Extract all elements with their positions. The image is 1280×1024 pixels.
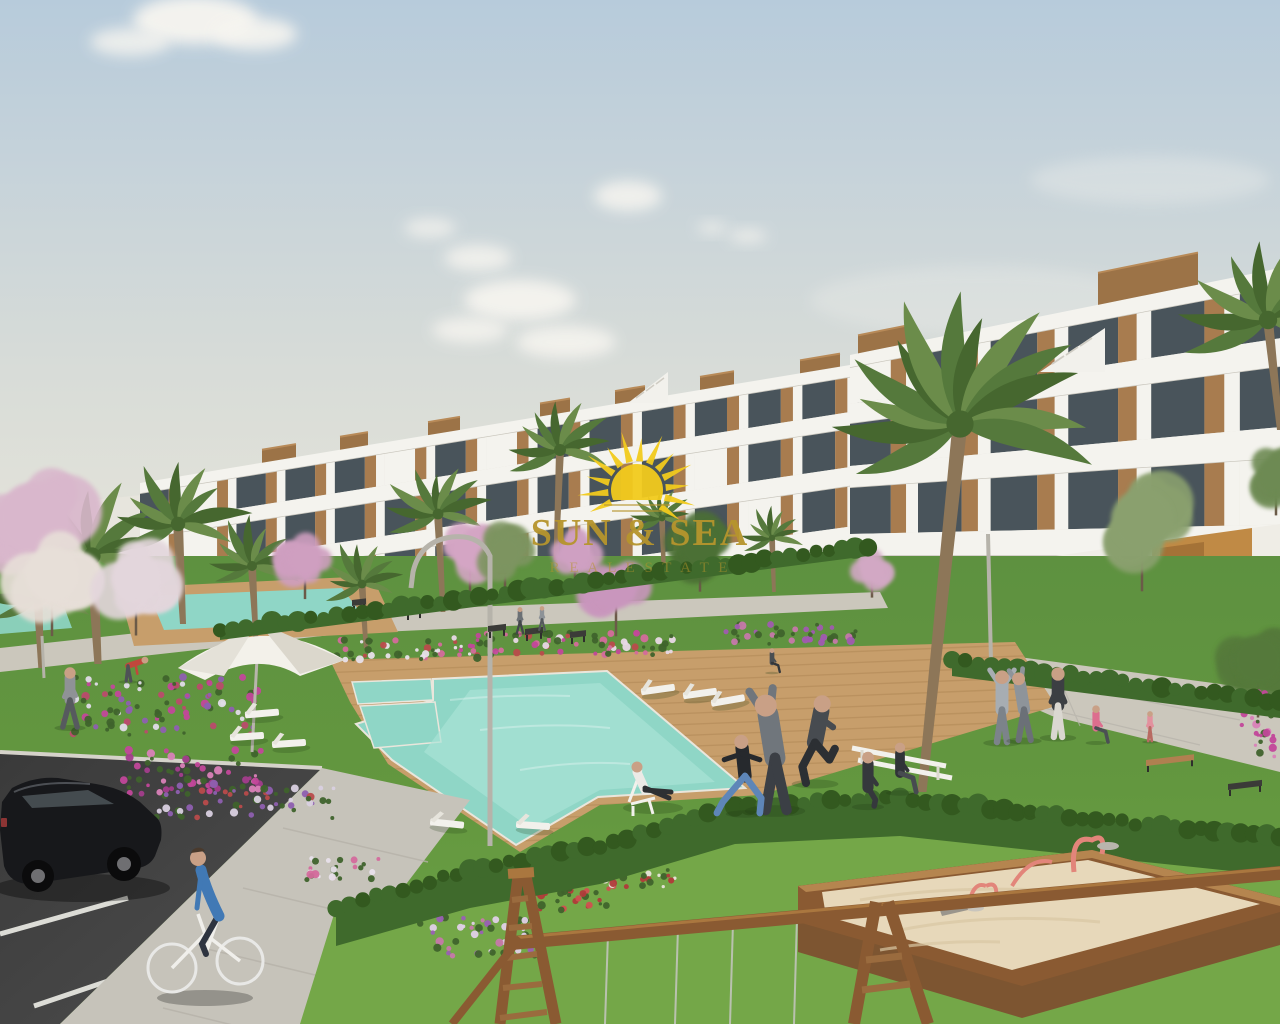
flower xyxy=(113,708,120,715)
flower xyxy=(218,799,223,804)
flower xyxy=(495,939,503,947)
flower xyxy=(774,625,779,630)
flower xyxy=(632,643,639,650)
cloud xyxy=(516,326,616,358)
wall-pier xyxy=(426,446,435,479)
flower xyxy=(492,916,499,923)
hedge-bump xyxy=(470,587,489,606)
window-glass xyxy=(802,380,835,419)
flower xyxy=(197,684,203,690)
flower xyxy=(1271,734,1275,738)
hedge-bump xyxy=(1102,813,1115,826)
flower xyxy=(242,776,249,783)
flower xyxy=(385,653,390,658)
flower xyxy=(565,634,570,639)
flower xyxy=(105,728,109,732)
limb xyxy=(1150,728,1152,742)
flower xyxy=(178,813,183,818)
flower xyxy=(157,808,162,813)
flower xyxy=(635,651,639,655)
tree-foliage xyxy=(25,547,79,601)
flower xyxy=(228,755,235,762)
flower xyxy=(468,652,471,655)
wood-panel xyxy=(835,378,847,414)
flower xyxy=(182,706,186,710)
flower xyxy=(210,723,217,730)
flower xyxy=(332,787,336,791)
flower xyxy=(558,907,565,914)
flower xyxy=(808,632,813,637)
window-glass xyxy=(1068,388,1118,446)
flower xyxy=(158,692,164,698)
flower xyxy=(521,917,528,924)
window-glass xyxy=(1068,470,1118,530)
flower xyxy=(498,648,504,654)
tree-foliage xyxy=(860,558,884,582)
flower xyxy=(288,802,295,809)
flower xyxy=(792,626,798,632)
flower xyxy=(161,778,166,783)
flower xyxy=(87,682,91,686)
person-shadow xyxy=(886,790,914,795)
flower xyxy=(657,874,660,877)
wood-panel xyxy=(835,487,847,529)
flower xyxy=(86,704,91,709)
wood-panel xyxy=(466,439,477,473)
flower xyxy=(459,645,462,648)
hedge-bump xyxy=(341,606,357,622)
flower xyxy=(164,700,169,705)
flower xyxy=(126,701,131,706)
window-glass xyxy=(802,431,835,474)
flower xyxy=(176,790,180,794)
cloud xyxy=(729,229,767,243)
flower xyxy=(93,724,98,729)
flower xyxy=(218,699,226,707)
flower xyxy=(279,803,284,808)
hedge-bump xyxy=(972,657,985,670)
flower xyxy=(603,902,610,909)
flower xyxy=(241,722,248,729)
flower xyxy=(513,638,518,643)
flower xyxy=(326,799,331,804)
flower xyxy=(436,648,440,652)
flower xyxy=(542,642,549,649)
flower xyxy=(177,783,183,789)
flower xyxy=(555,899,559,903)
wood-panel xyxy=(727,446,739,485)
person-head xyxy=(995,670,1009,684)
window-glass xyxy=(538,473,569,514)
wall-pier xyxy=(978,478,991,531)
flower xyxy=(168,706,176,714)
flower xyxy=(365,646,372,653)
flower xyxy=(142,718,148,724)
hedge-bump xyxy=(238,619,254,635)
palm-crown-center xyxy=(769,535,775,541)
cloud xyxy=(90,28,170,56)
flower xyxy=(593,652,597,656)
flower xyxy=(392,637,398,643)
flower xyxy=(356,655,364,663)
flower xyxy=(223,789,228,794)
flower xyxy=(186,804,193,811)
flower xyxy=(199,765,205,771)
flower xyxy=(267,805,273,811)
flower xyxy=(736,634,739,637)
flower xyxy=(607,630,614,637)
flower xyxy=(139,791,145,797)
hedge-bump xyxy=(1087,811,1104,828)
palm-crown-center xyxy=(433,509,444,520)
flower xyxy=(164,748,169,753)
tree-foliage xyxy=(288,543,322,577)
flower xyxy=(101,710,108,717)
flower xyxy=(666,650,670,654)
window-glass xyxy=(385,449,415,485)
person-head xyxy=(1012,672,1025,685)
wood-panel xyxy=(835,430,847,470)
flower xyxy=(115,691,122,698)
flower xyxy=(135,704,140,709)
tree-foliage xyxy=(488,535,522,569)
wood-panel xyxy=(1118,386,1137,442)
flower xyxy=(319,797,326,804)
flower xyxy=(274,792,278,796)
flower xyxy=(621,638,628,645)
flower xyxy=(723,629,728,634)
flower xyxy=(95,682,98,685)
flower xyxy=(239,805,243,809)
wood-panel xyxy=(727,396,739,432)
flower xyxy=(235,710,240,715)
cloud xyxy=(404,218,456,238)
flower xyxy=(125,707,132,714)
flower xyxy=(425,638,431,644)
wall-pier xyxy=(1137,384,1152,440)
hedge-bump xyxy=(1128,678,1143,693)
flower xyxy=(183,767,190,774)
wall-pier xyxy=(633,412,642,447)
flower xyxy=(380,642,387,649)
flower xyxy=(476,633,481,638)
flower xyxy=(134,763,141,770)
flower xyxy=(304,877,309,882)
flower xyxy=(591,633,597,639)
flower xyxy=(459,648,463,652)
cloud xyxy=(213,18,297,50)
wood-panel xyxy=(365,455,376,488)
flower xyxy=(175,767,180,772)
flower xyxy=(81,698,87,704)
flower xyxy=(226,770,231,775)
flower xyxy=(179,773,183,777)
flower xyxy=(480,931,484,935)
flower xyxy=(489,949,495,955)
flower xyxy=(438,642,442,646)
hedge-bump xyxy=(423,876,437,890)
flower xyxy=(1259,734,1263,738)
window-glass xyxy=(486,481,517,521)
tree-foliage xyxy=(1111,489,1173,551)
flower xyxy=(137,687,141,691)
flower xyxy=(239,674,246,681)
flower xyxy=(599,902,602,905)
flower xyxy=(624,884,629,889)
flower xyxy=(208,693,212,697)
flower xyxy=(451,635,456,640)
flower xyxy=(593,890,598,895)
flower xyxy=(351,657,355,661)
flower xyxy=(167,753,175,761)
flower xyxy=(228,792,233,797)
hedge-bump xyxy=(1024,805,1036,817)
flower xyxy=(231,746,239,754)
flower xyxy=(453,640,457,644)
flower xyxy=(138,681,141,684)
window-glass xyxy=(236,473,265,508)
flower xyxy=(1256,720,1260,724)
flower xyxy=(180,763,185,768)
person-shadow xyxy=(1086,741,1107,745)
cloud xyxy=(432,317,508,343)
window-glass xyxy=(991,475,1038,531)
flower xyxy=(118,696,124,702)
wall-pier xyxy=(326,509,335,545)
cloud xyxy=(697,222,727,234)
window-glass xyxy=(850,485,891,534)
flower xyxy=(265,795,270,800)
flower xyxy=(803,627,809,633)
person-head xyxy=(862,752,874,764)
person-head xyxy=(814,695,831,712)
wood-panel xyxy=(1037,474,1054,530)
wood-panel xyxy=(674,405,686,440)
flower xyxy=(853,629,857,633)
wood-panel xyxy=(781,387,793,423)
flower xyxy=(186,694,189,697)
wall-pier xyxy=(1137,311,1152,360)
person-shadow xyxy=(536,630,548,632)
flower xyxy=(731,638,738,645)
flower xyxy=(318,786,323,791)
flower xyxy=(254,774,257,777)
flower xyxy=(433,944,441,952)
flower xyxy=(240,784,246,790)
flower xyxy=(599,642,606,649)
wall-pier xyxy=(580,469,589,506)
flower xyxy=(206,810,213,817)
flower xyxy=(642,645,645,648)
hedge-bump xyxy=(489,858,503,872)
flower xyxy=(472,922,475,925)
cloud xyxy=(464,280,576,320)
flower xyxy=(200,777,207,784)
window-glass xyxy=(695,398,727,437)
person-shadow xyxy=(1006,738,1041,745)
flower xyxy=(291,784,299,792)
hedge-bump xyxy=(839,794,852,807)
wood-panel xyxy=(517,479,529,516)
flower xyxy=(650,652,655,657)
person-shadow xyxy=(852,804,884,810)
flower xyxy=(252,777,259,784)
person-head xyxy=(1051,667,1064,680)
flower xyxy=(1272,755,1276,759)
flower xyxy=(1258,739,1263,744)
hedge-bump xyxy=(796,548,810,562)
palm-crown-center xyxy=(171,517,185,531)
hedge-bump xyxy=(1116,674,1129,687)
flower xyxy=(777,629,785,637)
flower xyxy=(789,637,795,643)
flower xyxy=(218,676,224,682)
flower xyxy=(199,787,206,794)
flower xyxy=(735,624,740,629)
flower xyxy=(655,637,662,644)
flower xyxy=(128,776,132,780)
hedge-bump xyxy=(409,880,423,894)
wood-panel xyxy=(266,472,277,505)
person-shadow xyxy=(1040,735,1076,742)
flower xyxy=(162,804,170,812)
flower xyxy=(847,637,855,645)
wood-panel xyxy=(569,471,581,509)
flower xyxy=(398,652,402,656)
wood-panel xyxy=(891,484,906,533)
flower xyxy=(1254,744,1257,747)
flower xyxy=(744,633,751,640)
hedge-bump xyxy=(823,545,835,557)
flower xyxy=(643,650,648,655)
flower xyxy=(557,649,563,655)
hedge-bump xyxy=(420,595,434,609)
wall-pier xyxy=(477,437,486,471)
hedge-bump xyxy=(317,612,330,625)
flower xyxy=(147,749,155,757)
flower xyxy=(820,634,827,641)
wood-panel xyxy=(365,502,376,538)
hedge-bump xyxy=(810,545,823,558)
hedge-bump xyxy=(1169,683,1182,696)
flower xyxy=(338,876,343,881)
flower xyxy=(668,877,674,883)
person-head xyxy=(755,695,777,717)
person-head xyxy=(64,667,75,678)
flower xyxy=(163,786,170,793)
flower xyxy=(647,879,654,886)
flower xyxy=(216,682,224,690)
hedge-bump xyxy=(1116,813,1129,826)
flower xyxy=(457,652,462,657)
cloud xyxy=(444,245,512,271)
flower xyxy=(240,716,245,721)
flower xyxy=(169,786,174,791)
property-render-image: SUN & SEA R E A L E S T A T E xyxy=(0,0,1280,1024)
window-glass xyxy=(748,440,780,482)
flower xyxy=(205,703,210,708)
hedge-bump xyxy=(958,653,972,667)
flower xyxy=(633,630,640,637)
hedge-bump xyxy=(395,883,410,898)
flower xyxy=(586,902,593,909)
limb xyxy=(1058,706,1062,738)
wall-pier xyxy=(376,454,385,487)
flower xyxy=(462,925,466,929)
hedge-bump xyxy=(859,538,877,556)
flower xyxy=(513,649,520,656)
flower xyxy=(108,691,113,696)
wood-panel xyxy=(1204,462,1224,526)
flower xyxy=(1269,744,1277,752)
person-shadow xyxy=(792,780,839,789)
window-glass xyxy=(748,389,780,428)
flower xyxy=(487,925,494,932)
flower xyxy=(470,648,476,654)
window-glass xyxy=(435,441,466,478)
wood-panel xyxy=(1118,314,1137,363)
flower xyxy=(326,858,331,863)
flower xyxy=(574,642,579,647)
palm-crown-center xyxy=(358,580,367,589)
flower xyxy=(432,652,437,657)
wall-pier xyxy=(793,437,802,476)
flower xyxy=(492,648,498,654)
flower xyxy=(639,882,646,889)
flower xyxy=(136,776,142,782)
flower xyxy=(160,727,166,733)
flower xyxy=(473,654,481,662)
palm-crown-center xyxy=(554,444,566,456)
flower xyxy=(85,676,91,682)
flower xyxy=(597,898,601,902)
wall-pier xyxy=(1224,461,1240,525)
flower xyxy=(85,720,92,727)
wall-pier xyxy=(277,470,286,502)
flower xyxy=(102,691,108,697)
flower xyxy=(168,811,173,816)
palm-crown-center xyxy=(247,561,257,571)
flower xyxy=(666,874,670,878)
flower xyxy=(120,724,128,732)
person-head xyxy=(540,606,545,611)
flower xyxy=(1250,716,1254,720)
person-head xyxy=(770,648,775,653)
flower xyxy=(106,718,114,726)
flower xyxy=(1240,723,1244,727)
wall-pier xyxy=(529,478,538,515)
flower xyxy=(415,648,419,652)
person-shadow xyxy=(119,680,138,684)
hedge-bump xyxy=(1129,818,1142,831)
flower xyxy=(288,798,293,803)
flower xyxy=(481,918,485,922)
flower xyxy=(164,792,169,797)
hedge-bump xyxy=(1034,663,1054,683)
hedge-bump xyxy=(1061,809,1078,826)
flower xyxy=(471,930,479,938)
hedge-bump xyxy=(593,840,607,854)
flower xyxy=(360,640,363,643)
flower xyxy=(369,869,375,875)
flower xyxy=(669,650,673,654)
flower xyxy=(351,856,358,863)
flower xyxy=(767,621,774,628)
palm-crown-center xyxy=(1259,311,1277,329)
flower xyxy=(206,788,212,794)
flower xyxy=(422,650,429,657)
flower xyxy=(469,926,473,930)
